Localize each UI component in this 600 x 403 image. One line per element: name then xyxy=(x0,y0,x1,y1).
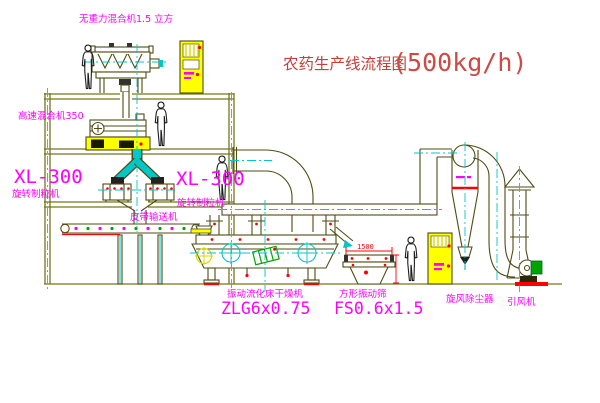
fan-label: 引风机 xyxy=(507,296,536,308)
high-speed-mixer-label: 高速混合机350 xyxy=(18,110,84,122)
person-4 xyxy=(405,237,417,281)
drawing-canvas: 无重力混合机1.5 立方 农药生产线流程图 (500kg/h) 高速混合机350… xyxy=(0,0,600,403)
gravity-mixer-label: 无重力混合机1.5 立方 xyxy=(79,13,173,25)
granulator-right-name: 旋转制粒机 xyxy=(177,197,225,209)
person-2 xyxy=(155,102,167,146)
conveyor-rollers xyxy=(74,227,185,230)
cyclone-label: 旋风除尘器 xyxy=(446,293,494,305)
control-cabinet-sieve xyxy=(428,233,452,284)
granulator-left-name: 旋转制粒机 xyxy=(12,188,60,200)
belt-conveyor-label: 皮带输送机 xyxy=(130,211,178,223)
process-flow-diagram: 无重力混合机1.5 立方 农药生产线流程图 (500kg/h) 高速混合机350… xyxy=(0,0,600,403)
gravity-mixer xyxy=(91,43,163,118)
granulator-right xyxy=(146,177,174,202)
drawing-title: 农药生产线流程图 xyxy=(283,55,407,73)
fluid-bed-dryer xyxy=(191,226,338,285)
granulator-right-model: XL-300 xyxy=(176,168,245,190)
granulator-left xyxy=(103,177,131,202)
dryer-model-label: ZLG6x0.75 xyxy=(221,299,310,318)
vibrating-sieve xyxy=(343,247,399,284)
labels: 无重力混合机1.5 立方 农药生产线流程图 (500kg/h) 高速混合机350… xyxy=(12,13,536,318)
exhaust-header xyxy=(206,149,437,235)
indicator-dot xyxy=(198,46,201,49)
drawing-title-capacity: (500kg/h) xyxy=(392,48,527,77)
high-speed-mixer xyxy=(86,114,150,150)
control-cabinet-top xyxy=(180,41,203,93)
hot-air-duct xyxy=(233,147,313,232)
sieve-dimension-label: 1500 xyxy=(357,243,374,251)
granulator-left-model: XL-300 xyxy=(14,166,83,188)
fan-motor xyxy=(531,261,542,274)
exhaust-duct xyxy=(464,145,526,277)
sieve-model-label: FS0.6x1.5 xyxy=(334,299,423,318)
belt-conveyor xyxy=(61,224,200,284)
